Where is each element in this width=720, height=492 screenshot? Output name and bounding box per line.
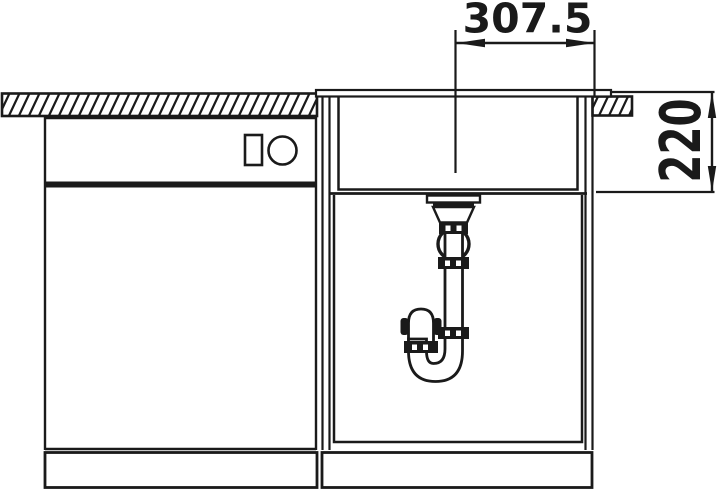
dimension-width: 307.5	[456, 0, 595, 173]
technical-drawing-canvas: 307.5 220	[0, 0, 720, 492]
trap-pipe	[409, 232, 463, 382]
coupling-nut-lower	[438, 327, 469, 339]
sink-installation-drawing: 307.5 220	[0, 0, 720, 492]
drain-assembly	[401, 196, 481, 382]
left-base-cabinet	[45, 116, 317, 488]
sink-rim	[316, 90, 611, 97]
sink-cabinet-plinth	[322, 453, 592, 488]
bowl-inner-wall	[339, 96, 578, 190]
depth-dimension-value: 220	[648, 98, 713, 182]
drawer-knob-circle-icon	[269, 137, 297, 165]
countertop-left-section	[2, 94, 317, 117]
strainer-flange	[427, 196, 480, 203]
sink-bowl	[316, 90, 611, 194]
countertop-right-section	[593, 97, 633, 116]
trap-bulb-tab-left	[401, 318, 409, 335]
strainer-body	[433, 207, 474, 223]
trap-outlet-nut	[404, 341, 438, 353]
drawer-front-divider	[45, 182, 316, 188]
drawer-handle-rect-icon	[245, 135, 262, 165]
coupling-nut-top	[439, 222, 468, 234]
width-dimension-value: 307.5	[463, 0, 593, 43]
coupling-nut-middle	[438, 257, 469, 269]
left-cabinet-plinth	[45, 453, 317, 488]
